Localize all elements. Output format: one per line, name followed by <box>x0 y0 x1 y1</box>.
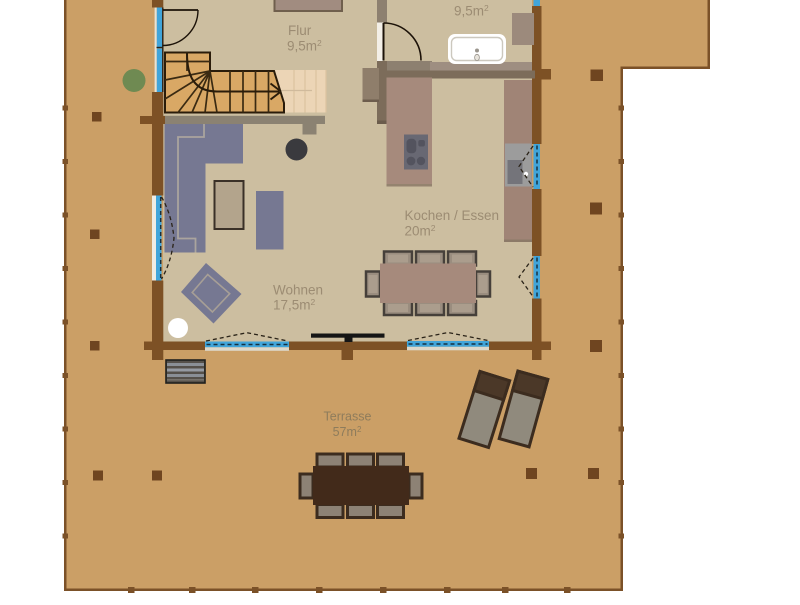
svg-text:Wohnen: Wohnen <box>273 283 323 298</box>
svg-text:Terrasse: Terrasse <box>324 410 372 424</box>
svg-text:Kochen / Essen: Kochen / Essen <box>405 208 500 223</box>
svg-text:9,5m2: 9,5m2 <box>454 3 489 19</box>
svg-text:17,5m2: 17,5m2 <box>273 297 316 313</box>
svg-text:9,5m2: 9,5m2 <box>287 38 322 54</box>
svg-text:Flur: Flur <box>288 23 312 38</box>
